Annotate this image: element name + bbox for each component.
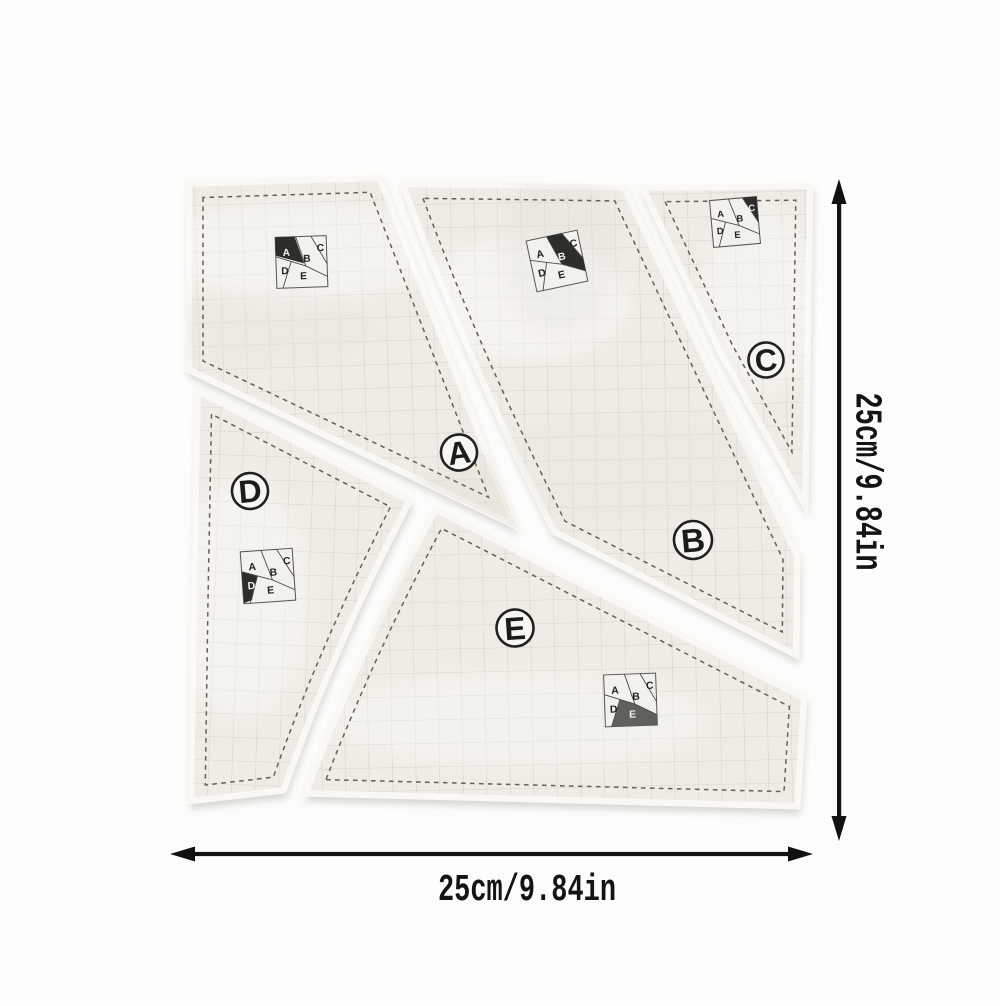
svg-text:D: D bbox=[281, 266, 289, 277]
svg-text:B: B bbox=[680, 521, 707, 560]
svg-text:B: B bbox=[632, 692, 640, 703]
svg-text:A: A bbox=[611, 686, 619, 697]
svg-text:D: D bbox=[716, 225, 724, 237]
svg-text:A: A bbox=[283, 248, 291, 259]
svg-text:B: B bbox=[269, 567, 278, 579]
svg-text:D: D bbox=[610, 704, 618, 715]
svg-text:E: E bbox=[267, 585, 275, 596]
svg-text:D: D bbox=[237, 472, 263, 510]
svg-text:C: C bbox=[748, 202, 756, 214]
svg-text:E: E bbox=[300, 271, 307, 282]
svg-text:D: D bbox=[247, 581, 256, 593]
svg-text:A: A bbox=[248, 562, 257, 574]
svg-text:B: B bbox=[303, 254, 311, 265]
svg-text:25cm/9.84in: 25cm/9.84in bbox=[438, 869, 616, 912]
svg-text:C: C bbox=[283, 556, 292, 568]
svg-text:C: C bbox=[646, 681, 654, 692]
svg-text:B: B bbox=[736, 212, 744, 224]
svg-text:A: A bbox=[717, 208, 725, 220]
svg-text:C: C bbox=[317, 243, 325, 254]
svg-text:25cm/9.84in: 25cm/9.84in bbox=[845, 393, 888, 571]
svg-text:E: E bbox=[503, 610, 527, 647]
svg-text:E: E bbox=[734, 229, 741, 241]
svg-text:C: C bbox=[753, 342, 778, 379]
svg-text:E: E bbox=[629, 710, 636, 721]
svg-text:A: A bbox=[445, 433, 473, 472]
